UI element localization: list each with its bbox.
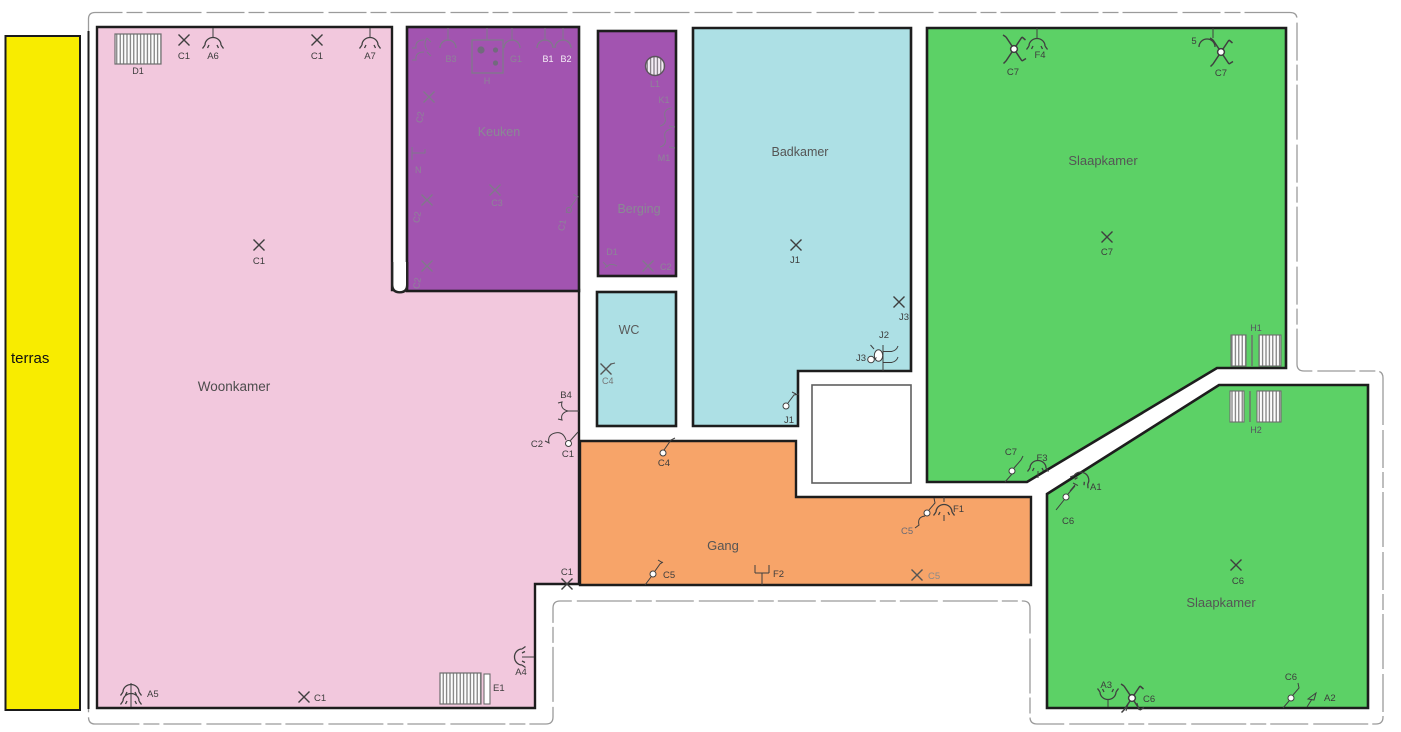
svg-text:C2: C2: [411, 277, 423, 290]
svg-text:C5: C5: [901, 526, 913, 537]
svg-text:H1: H1: [1250, 323, 1262, 333]
svg-text:C4: C4: [658, 458, 670, 469]
svg-text:C7: C7: [1005, 447, 1017, 458]
svg-text:A7: A7: [364, 51, 376, 62]
svg-text:M1: M1: [658, 153, 671, 163]
svg-text:C2: C2: [531, 439, 543, 450]
svg-text:F3: F3: [1036, 453, 1047, 464]
svg-text:A6: A6: [207, 51, 219, 62]
svg-text:C4: C4: [602, 376, 614, 386]
svg-text:H2: H2: [1250, 425, 1262, 435]
svg-text:Gang: Gang: [707, 538, 739, 553]
svg-text:C3: C3: [491, 198, 503, 208]
svg-text:C7: C7: [1215, 68, 1227, 79]
svg-text:B1: B1: [542, 54, 553, 64]
svg-text:C1: C1: [314, 693, 326, 704]
svg-text:F2: F2: [773, 569, 784, 580]
svg-text:C2: C2: [414, 111, 426, 124]
svg-text:J2: J2: [879, 330, 889, 341]
svg-text:Berging: Berging: [617, 202, 660, 216]
svg-text:B3: B3: [445, 54, 456, 64]
svg-text:A4: A4: [515, 667, 527, 678]
svg-text:C1: C1: [253, 256, 265, 267]
svg-text:A5: A5: [147, 689, 159, 700]
svg-text:D1: D1: [132, 66, 144, 76]
svg-text:Slaapkamer: Slaapkamer: [1068, 153, 1138, 168]
svg-text:C1: C1: [562, 449, 574, 460]
svg-text:C2: C2: [411, 211, 423, 224]
svg-text:F1: F1: [953, 504, 964, 515]
svg-text:C1: C1: [556, 219, 568, 232]
svg-text:B4: B4: [560, 390, 572, 401]
svg-text:C6: C6: [1232, 576, 1244, 587]
svg-text:J1: J1: [784, 415, 794, 426]
svg-text:C5: C5: [663, 570, 675, 581]
svg-text:C7: C7: [1007, 67, 1019, 78]
svg-text:J1: J1: [790, 255, 800, 266]
svg-text:C6: C6: [1143, 694, 1155, 705]
svg-text:E1: E1: [493, 683, 505, 694]
svg-text:5: 5: [1191, 36, 1196, 47]
svg-text:K1: K1: [658, 95, 669, 105]
svg-text:C6: C6: [1062, 516, 1074, 527]
svg-text:Slaapkamer: Slaapkamer: [1186, 595, 1256, 610]
svg-text:A1: A1: [1090, 482, 1102, 493]
svg-text:H: H: [484, 76, 491, 86]
svg-text:WC: WC: [619, 323, 640, 337]
svg-text:Keuken: Keuken: [478, 125, 520, 139]
svg-text:A3: A3: [1100, 680, 1112, 691]
svg-text:terras: terras: [11, 350, 49, 367]
svg-text:C1: C1: [311, 51, 323, 62]
svg-text:L1: L1: [650, 79, 660, 89]
svg-text:J3: J3: [856, 353, 866, 364]
svg-text:G1: G1: [510, 54, 522, 64]
svg-text:C7: C7: [1101, 247, 1113, 258]
svg-text:C1: C1: [178, 51, 190, 62]
svg-text:J3: J3: [899, 312, 909, 323]
svg-text:B2: B2: [560, 54, 571, 64]
svg-text:F4: F4: [1034, 50, 1045, 61]
svg-text:C6: C6: [1285, 672, 1297, 683]
svg-text:A2: A2: [1324, 693, 1336, 704]
svg-text:C5: C5: [928, 571, 940, 582]
svg-text:C2: C2: [660, 262, 672, 272]
svg-text:Badkamer: Badkamer: [772, 145, 829, 159]
svg-text:D1: D1: [606, 247, 618, 257]
svg-text:C1: C1: [561, 567, 573, 578]
svg-text:N: N: [415, 165, 422, 175]
svg-text:Woonkamer: Woonkamer: [198, 379, 271, 394]
